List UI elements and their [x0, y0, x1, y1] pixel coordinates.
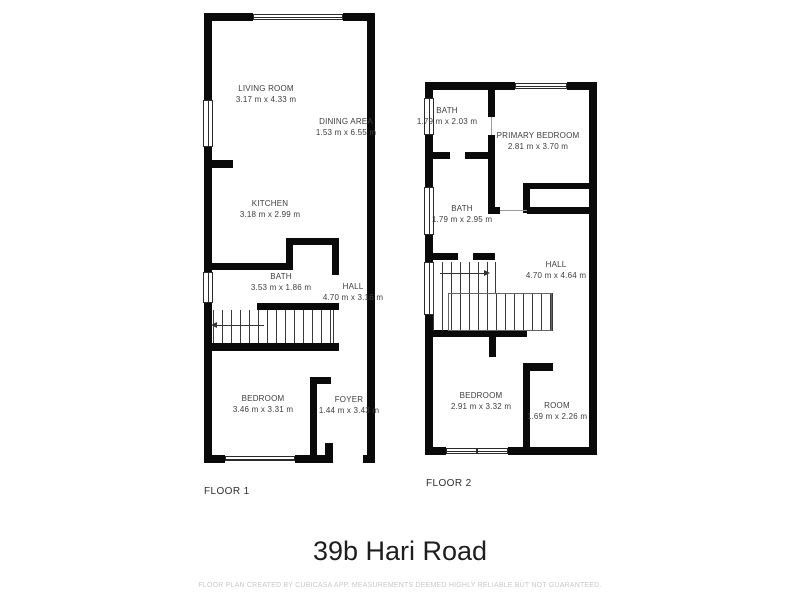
floor-plan-page: LIVING ROOM 3.17 m x 4.33 m DINING AREA … [0, 0, 800, 600]
door-opening [491, 117, 492, 135]
room-dims: 4.70 m x 3.16 m [323, 292, 383, 303]
window [515, 83, 567, 89]
room-label-bedroom-f2: BEDROOM 2.91 m x 3.32 m [451, 390, 511, 412]
room-dims: 1.69 m x 2.26 m [527, 411, 587, 422]
window [203, 100, 213, 147]
wall [488, 89, 495, 117]
wall [310, 377, 331, 384]
wall [204, 343, 339, 351]
room-label-dining-area: DINING AREA 1.53 m x 6.55 m [316, 116, 376, 138]
wall [465, 152, 495, 159]
room-label-living-room: LIVING ROOM 3.17 m x 4.33 m [236, 83, 296, 105]
wall [489, 337, 496, 357]
room-dims: 3.46 m x 3.31 m [233, 404, 293, 415]
window [477, 448, 508, 454]
door-opening [500, 210, 527, 211]
window [203, 272, 213, 303]
room-name: BATH [432, 203, 492, 214]
room-name: LIVING ROOM [236, 83, 296, 94]
wall [425, 330, 527, 337]
wall [310, 377, 317, 463]
room-name: BATH [251, 271, 311, 282]
wall [425, 82, 515, 90]
room-dims: 1.44 m x 3.43 m [319, 405, 379, 416]
room-label-bedroom-f1: BEDROOM 3.46 m x 3.31 m [233, 393, 293, 415]
room-label-hall-f1: HALL 4.70 m x 3.16 m [323, 281, 383, 303]
room-name: PRIMARY BEDROOM [497, 130, 580, 141]
wall [425, 253, 458, 260]
room-name: HALL [323, 281, 383, 292]
stair-arrow-head [484, 270, 490, 276]
window [446, 448, 477, 454]
room-dims: 3.17 m x 4.33 m [236, 94, 296, 105]
wall [425, 447, 446, 455]
room-name: BEDROOM [233, 393, 293, 404]
wall [530, 363, 553, 371]
wall [589, 82, 597, 455]
room-name: HALL [526, 259, 586, 270]
wall [332, 238, 339, 275]
staircase [213, 310, 334, 343]
room-dims: 1.79 m x 2.95 m [432, 214, 492, 225]
room-label-primary-bedroom: PRIMARY BEDROOM 2.81 m x 3.70 m [497, 130, 580, 152]
room-dims: 4.70 m x 4.64 m [526, 270, 586, 281]
room-dims: 3.18 m x 2.99 m [240, 209, 300, 220]
floor1-label: FLOOR 1 [204, 486, 250, 497]
room-label-room: ROOM 1.69 m x 2.26 m [527, 400, 587, 422]
room-dims: 3.53 m x 1.86 m [251, 282, 311, 293]
room-dims: 2.81 m x 3.70 m [497, 141, 580, 152]
room-label-hall-f2: HALL 4.70 m x 4.64 m [526, 259, 586, 281]
wall [508, 447, 597, 455]
stair-arrow-head [211, 322, 217, 328]
wall [204, 160, 233, 168]
stair-railing [448, 293, 552, 331]
room-dims: 1.53 m x 6.55 m [316, 127, 376, 138]
room-label-bath-lower: BATH 1.79 m x 2.95 m [432, 203, 492, 225]
room-label-foyer: FOYER 1.44 m x 3.43 m [319, 394, 379, 416]
floor2-label: FLOOR 2 [426, 478, 472, 489]
wall [527, 183, 589, 189]
room-dims: 1.79 m x 2.03 m [417, 116, 477, 127]
wall [204, 263, 292, 270]
window [225, 456, 295, 461]
page-title: 39b Hari Road [0, 536, 800, 567]
wall [204, 455, 225, 463]
room-name: BATH [417, 105, 477, 116]
wall [488, 135, 495, 213]
wall [425, 152, 450, 159]
room-name: DINING AREA [316, 116, 376, 127]
room-label-kitchen: KITCHEN 3.18 m x 2.99 m [240, 198, 300, 220]
staircase [433, 262, 496, 293]
wall [257, 303, 339, 310]
room-name: KITCHEN [240, 198, 300, 209]
room-name: FOYER [319, 394, 379, 405]
room-label-bath-upper: BATH 1.79 m x 2.03 m [417, 105, 477, 127]
room-dims: 2.91 m x 3.32 m [451, 401, 511, 412]
disclaimer-text: FLOOR PLAN CREATED BY CUBICASA APP. MEAS… [0, 582, 800, 589]
wall [527, 207, 589, 214]
stair-direction-arrow [216, 325, 264, 326]
stair-direction-arrow [440, 273, 486, 274]
room-name: BEDROOM [451, 390, 511, 401]
wall [363, 455, 375, 463]
room-name: ROOM [527, 400, 587, 411]
window [253, 14, 343, 20]
wall [204, 13, 212, 463]
wall [325, 443, 333, 463]
room-label-bath-f1: BATH 3.53 m x 1.86 m [251, 271, 311, 293]
wall [473, 253, 495, 260]
